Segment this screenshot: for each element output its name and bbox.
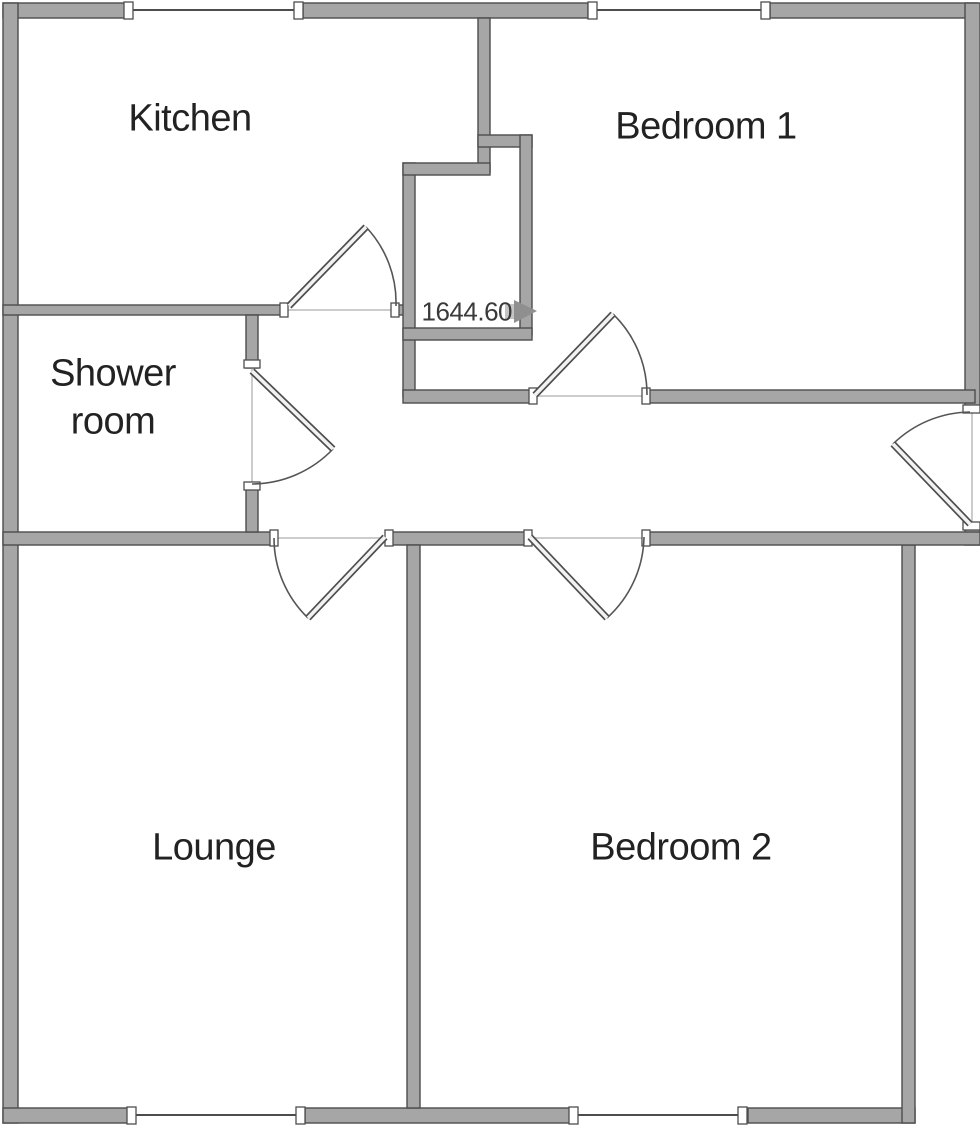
storage-cupboard <box>403 135 532 403</box>
cupboard-wall-left <box>403 163 415 397</box>
wall-hallway-bottom-left <box>3 532 273 545</box>
wall-bottom-left <box>3 1108 128 1123</box>
lounge-label: Lounge <box>152 827 276 870</box>
shower-room-label-line2: room <box>50 398 176 446</box>
bedroom1-window <box>588 2 770 19</box>
interior-walls <box>3 18 975 1108</box>
kitchen-window <box>124 2 303 19</box>
door-panels <box>252 227 970 618</box>
bedroom1-label: Bedroom 1 <box>615 106 796 149</box>
wall-bottom-right <box>748 1108 915 1123</box>
cupboard-alcove-wall-bottom <box>403 390 532 403</box>
wall-top-middle <box>303 3 588 18</box>
wall-hallway-bottom-right <box>645 532 980 545</box>
shower-room-label: Shower room <box>50 351 176 446</box>
shower-door-jamb-top <box>244 360 260 368</box>
bedroom1-door-arc <box>613 314 647 395</box>
cupboard-wall-top <box>403 163 490 175</box>
entrance-door-panel <box>893 444 970 524</box>
wall-top-left <box>3 3 125 18</box>
cupboard-wall-bottom <box>403 328 532 340</box>
bedroom2-label: Bedroom 2 <box>590 827 771 870</box>
door-jambs <box>244 303 980 546</box>
bedroom2-window <box>569 1107 747 1124</box>
wall-left <box>3 3 18 1123</box>
shower-door-arc <box>252 449 333 484</box>
wall-lounge-bedroom2-divider <box>407 545 420 1108</box>
floorplan: Kitchen Bedroom 1 Shower room Lounge Bed… <box>0 0 980 1128</box>
lounge-door-jamb-right <box>385 530 393 546</box>
wall-bottom-middle <box>305 1108 570 1123</box>
kitchen-door-jamb-left <box>280 303 288 317</box>
entrance-door-arc <box>893 412 970 444</box>
wall-kitchen-bedroom1-divider <box>478 18 490 172</box>
lounge-door-arc <box>274 538 308 618</box>
lounge-door-panel <box>308 537 385 618</box>
lounge-window <box>127 1107 305 1124</box>
kitchen-door-panel <box>289 227 366 306</box>
measurement-label: 1644.60 <box>422 297 512 328</box>
wall-top-right <box>770 3 977 18</box>
bedroom2-door-panel <box>530 537 607 618</box>
wall-bedroom1-bottom <box>645 390 975 403</box>
bedroom1-door-panel <box>535 314 613 395</box>
wall-right-upper <box>965 3 980 412</box>
wall-kitchen-bottom <box>3 305 283 315</box>
wall-right-lower <box>902 545 915 1123</box>
kitchen-door-arc <box>366 227 396 306</box>
kitchen-door-jamb-right <box>391 303 399 317</box>
exterior-walls <box>3 3 980 1123</box>
floorplan-drawing <box>0 0 980 1128</box>
shower-room-label-line1: Shower <box>50 351 176 399</box>
door-threshold-lines <box>252 310 972 538</box>
shower-door-panel <box>252 371 333 449</box>
bedroom2-door-arc <box>607 537 644 618</box>
wall-hallway-bottom-middle <box>388 532 527 545</box>
kitchen-label: Kitchen <box>128 98 251 141</box>
bedroom1-door-jamb-right <box>642 388 650 404</box>
